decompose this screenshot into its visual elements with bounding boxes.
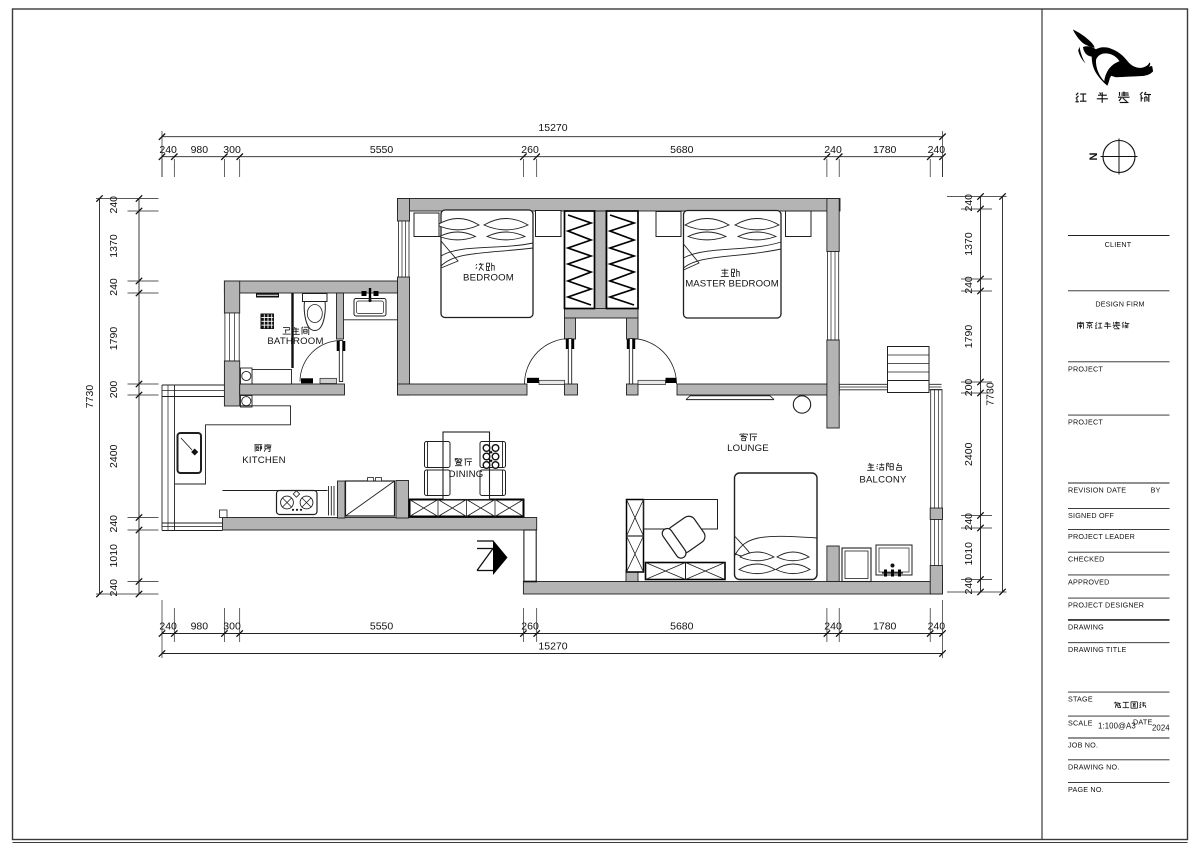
svg-text:300: 300	[223, 144, 241, 156]
svg-text:1370: 1370	[108, 234, 120, 258]
svg-text:PROJECT: PROJECT	[1068, 418, 1103, 427]
svg-text:260: 260	[521, 621, 539, 633]
svg-text:15270: 15270	[538, 641, 567, 653]
svg-text:APPROVED: APPROVED	[1068, 577, 1110, 586]
svg-text:300: 300	[223, 621, 241, 633]
svg-text:1790: 1790	[963, 325, 975, 349]
svg-text:KITCHEN: KITCHEN	[242, 455, 286, 466]
svg-text:PROJECT DESIGNER: PROJECT DESIGNER	[1068, 601, 1144, 610]
svg-text:DATE: DATE	[1107, 486, 1126, 495]
svg-text:240: 240	[108, 515, 120, 533]
svg-text:200: 200	[963, 379, 975, 397]
svg-text:CHECKED: CHECKED	[1068, 555, 1105, 564]
svg-text:PROJECT: PROJECT	[1068, 364, 1103, 373]
svg-text:260: 260	[521, 144, 539, 156]
svg-text:SIGNED OFF: SIGNED OFF	[1068, 511, 1114, 520]
svg-text:2400: 2400	[108, 444, 120, 468]
svg-text:JOB NO.: JOB NO.	[1068, 741, 1098, 750]
svg-text:MASTER BEDROOM: MASTER BEDROOM	[685, 279, 779, 290]
svg-text:5550: 5550	[370, 621, 394, 633]
svg-text:1780: 1780	[873, 621, 897, 633]
svg-text:200: 200	[108, 381, 120, 399]
svg-text:PAGE NO.: PAGE NO.	[1068, 785, 1104, 794]
svg-text:BY: BY	[1151, 486, 1161, 495]
svg-text:DRAWING TITLE: DRAWING TITLE	[1068, 645, 1127, 654]
svg-text:PROJECT LEADER: PROJECT LEADER	[1068, 532, 1135, 541]
svg-text:DESIGN FIRM: DESIGN FIRM	[1095, 300, 1144, 309]
svg-text:CLIENT: CLIENT	[1105, 240, 1132, 249]
svg-text:N: N	[1088, 152, 1100, 160]
svg-text:SCALE: SCALE	[1068, 719, 1093, 728]
svg-text:2024: 2024	[1152, 724, 1170, 733]
svg-text:980: 980	[191, 621, 209, 633]
svg-text:1010: 1010	[963, 542, 975, 566]
svg-text:5680: 5680	[670, 621, 694, 633]
svg-text:7730: 7730	[985, 382, 997, 406]
svg-text:15270: 15270	[538, 122, 567, 134]
svg-text:DINING: DINING	[449, 469, 484, 480]
svg-text:1780: 1780	[873, 144, 897, 156]
svg-text:7730: 7730	[84, 385, 96, 409]
svg-text:240: 240	[824, 144, 842, 156]
svg-text:5550: 5550	[370, 144, 394, 156]
svg-text:BALCONY: BALCONY	[859, 475, 907, 486]
svg-text:980: 980	[191, 144, 209, 156]
svg-text:1010: 1010	[108, 544, 120, 568]
svg-text:BATHROOM: BATHROOM	[267, 336, 323, 347]
svg-text:REVISION: REVISION	[1068, 486, 1104, 495]
svg-text:DATE: DATE	[1133, 718, 1152, 727]
svg-text:2400: 2400	[963, 442, 975, 466]
svg-text:DRAWING: DRAWING	[1068, 622, 1104, 631]
svg-text:240: 240	[108, 278, 120, 296]
svg-text:5680: 5680	[670, 144, 694, 156]
svg-text:DRAWING NO.: DRAWING NO.	[1068, 762, 1119, 771]
svg-text:1:100@A3: 1:100@A3	[1098, 722, 1136, 731]
svg-text:BEDROOM: BEDROOM	[463, 273, 514, 284]
svg-text:STAGE: STAGE	[1068, 695, 1093, 704]
svg-text:LOUNGE: LOUNGE	[727, 443, 769, 454]
svg-text:1370: 1370	[963, 232, 975, 256]
svg-text:1790: 1790	[108, 327, 120, 351]
